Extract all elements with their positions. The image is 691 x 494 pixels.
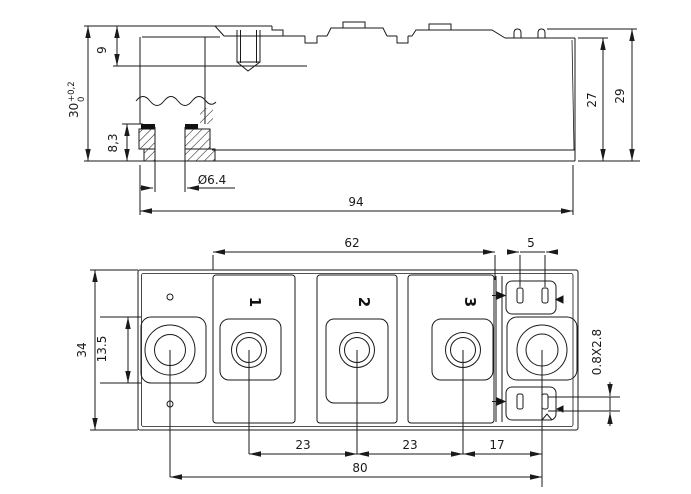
dim-value: 13.5 (95, 336, 109, 363)
terminal-label-1: 1 (246, 297, 264, 307)
dim-value: 80 (352, 461, 367, 475)
dim-value: 94 (348, 195, 363, 209)
dim-value: 17 (489, 438, 504, 452)
dim-value: 34 (75, 342, 89, 357)
dim-value: 62 (344, 236, 359, 250)
dim-tolerance-lower: 0 (77, 97, 87, 102)
module-dimension-drawing: 30 +0,2 0 9 8,3 Ø6.4 (0, 0, 691, 494)
dim-tolerance-upper: +0,2 (67, 81, 77, 102)
hatch-right-upper (185, 129, 210, 149)
technical-drawing-page: 30 +0,2 0 9 8,3 Ø6.4 (0, 0, 691, 494)
seal-left (141, 124, 155, 129)
dim-value: 8,3 (106, 133, 120, 152)
dim-value: 27 (585, 92, 599, 107)
terminal-label-3: 3 (461, 297, 479, 307)
hatch-left-upper (139, 129, 155, 149)
dim-value: 23 (295, 438, 310, 452)
dim-value: 0.8X2.8 (590, 329, 604, 375)
hatch-blob (200, 108, 213, 124)
dim-value: 23 (402, 438, 417, 452)
dim-value: Ø6.4 (198, 173, 227, 187)
hatch-left-lower (144, 149, 155, 161)
dim-value: 29 (613, 88, 627, 103)
dim-value: 5 (527, 236, 535, 250)
hatch-right-lower (185, 149, 215, 161)
seal-right (185, 124, 198, 129)
dim-value: 30 (67, 103, 81, 118)
dim-value: 9 (95, 46, 109, 54)
terminal-label-2: 2 (355, 297, 373, 307)
